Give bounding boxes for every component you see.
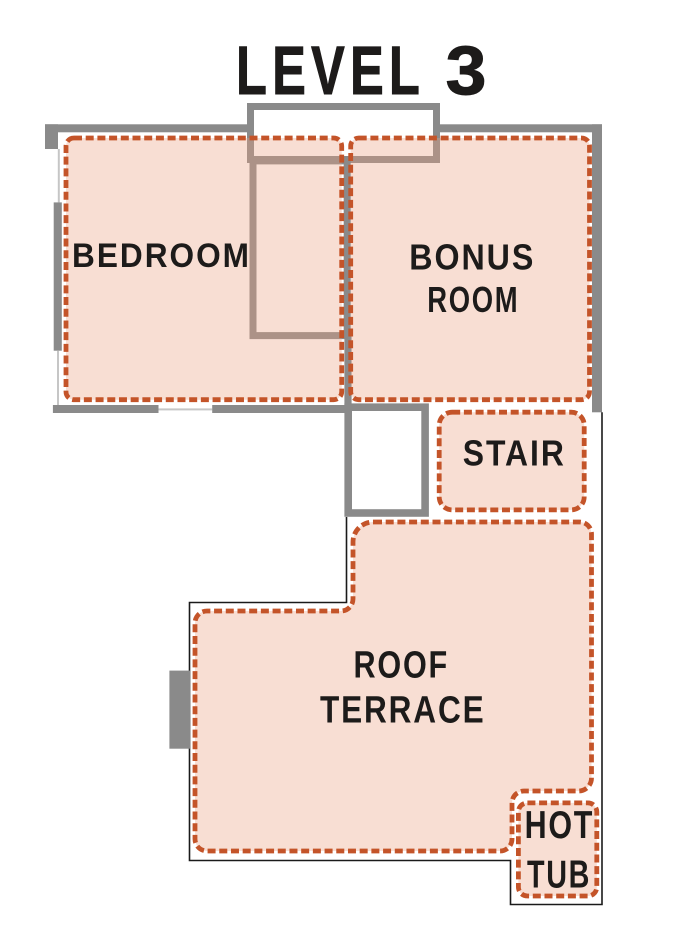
svg-text:HOT: HOT [525, 804, 595, 847]
svg-text:TUB: TUB [527, 854, 591, 897]
svg-text:ROOF: ROOF [354, 644, 450, 686]
svg-text:LEVEL: LEVEL [236, 32, 425, 109]
svg-text:TERRACE: TERRACE [320, 689, 486, 731]
svg-text:STAIR: STAIR [463, 433, 566, 473]
svg-text:BEDROOM: BEDROOM [72, 237, 251, 275]
svg-text:BONUS: BONUS [409, 236, 535, 277]
svg-text:ROOM: ROOM [427, 279, 519, 320]
svg-text:3: 3 [446, 32, 487, 109]
